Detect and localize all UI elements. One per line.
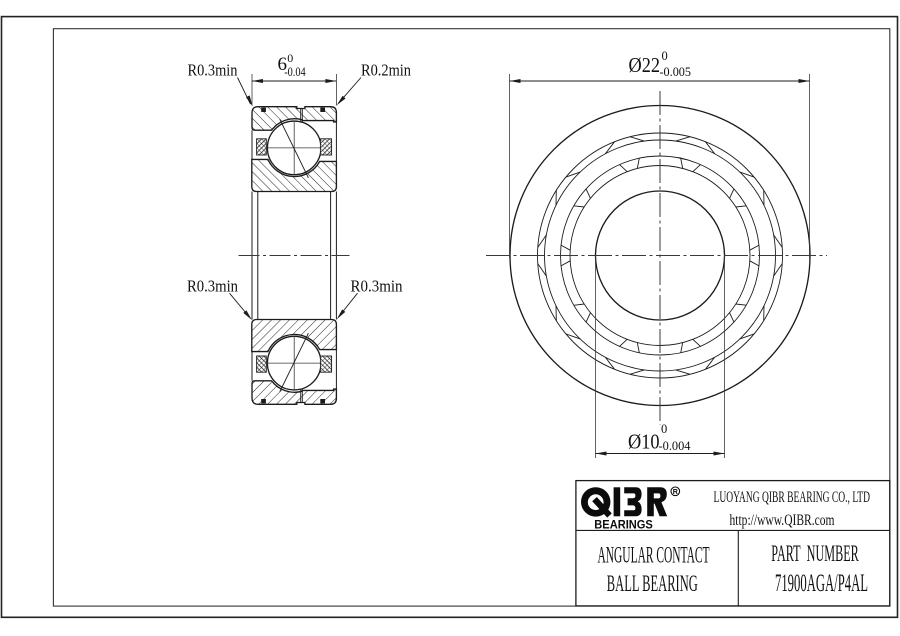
svg-text:BEARINGS: BEARINGS xyxy=(594,518,653,532)
svg-text:ANGULAR CONTACT: ANGULAR CONTACT xyxy=(598,543,710,568)
svg-text:-0.004: -0.004 xyxy=(659,438,691,453)
svg-text:Ø10: Ø10 xyxy=(628,429,660,453)
svg-text:0: 0 xyxy=(661,422,667,436)
svg-text:71900AGA/P4AL: 71900AGA/P4AL xyxy=(775,568,868,597)
svg-text:PART NUMBER: PART NUMBER xyxy=(771,541,859,566)
svg-text:R: R xyxy=(673,489,678,496)
svg-text:R0.3min: R0.3min xyxy=(351,276,403,295)
svg-text:BALL BEARING: BALL BEARING xyxy=(607,571,698,596)
svg-text:http://www.QIBR.com: http://www.QIBR.com xyxy=(730,512,835,529)
svg-text:LUOYANG QIBR BEARING CO., LTD: LUOYANG QIBR BEARING CO., LTD xyxy=(714,489,871,506)
svg-text:0: 0 xyxy=(662,49,668,63)
svg-text:-0.005: -0.005 xyxy=(660,64,692,79)
svg-text:0: 0 xyxy=(287,51,293,65)
svg-text:R0.3min: R0.3min xyxy=(188,61,238,80)
svg-text:-0.04: -0.04 xyxy=(284,64,306,79)
svg-text:R0.3min: R0.3min xyxy=(187,276,238,295)
svg-text:R0.2min: R0.2min xyxy=(361,61,411,80)
svg-text:Ø22: Ø22 xyxy=(629,53,661,77)
